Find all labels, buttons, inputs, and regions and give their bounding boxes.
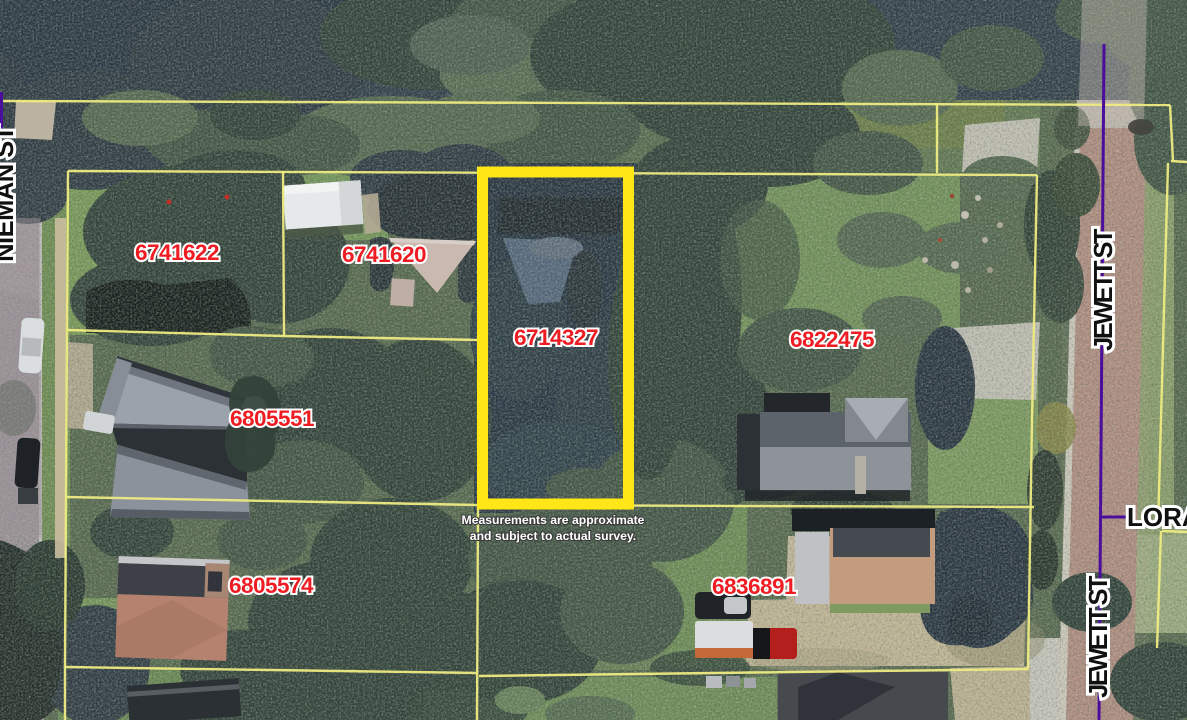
svg-text:JEWETT ST: JEWETT ST bbox=[1085, 575, 1113, 698]
svg-text:6805574: 6805574 bbox=[229, 573, 314, 598]
svg-text:6741620: 6741620 bbox=[342, 242, 426, 267]
svg-text:LORAIN: LORAIN bbox=[1127, 502, 1187, 532]
svg-text:6714327: 6714327 bbox=[514, 325, 598, 350]
svg-text:6741622: 6741622 bbox=[135, 240, 219, 265]
svg-text:NIEMAN ST: NIEMAN ST bbox=[0, 125, 19, 262]
svg-text:6822475: 6822475 bbox=[790, 327, 874, 352]
svg-text:6836891: 6836891 bbox=[712, 574, 796, 599]
svg-text:JEWETT ST: JEWETT ST bbox=[1090, 228, 1118, 351]
svg-text:and subject to actual survey.: and subject to actual survey. bbox=[470, 529, 636, 543]
svg-text:Measurements are approximate: Measurements are approximate bbox=[462, 513, 645, 527]
svg-text:6805551: 6805551 bbox=[230, 406, 314, 431]
